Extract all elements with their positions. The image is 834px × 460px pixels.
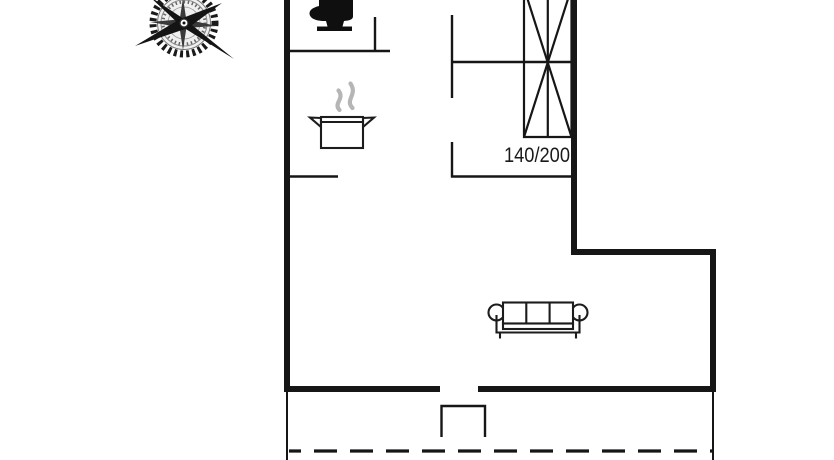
- floorplan-canvas: 140/200: [0, 0, 834, 460]
- floorplan-page: 140/200: [0, 0, 834, 460]
- exterior-wall-left-bottom: [287, 0, 440, 389]
- steam-wisp-left: [338, 91, 341, 111]
- exterior-walls: [287, 0, 713, 389]
- pot-handle-right: [363, 118, 374, 128]
- toilet-icon: [309, 0, 353, 31]
- terrace: [287, 392, 713, 460]
- pot-handle-left: [310, 118, 321, 128]
- toilet-silhouette: [309, 0, 353, 31]
- sofa-feet: [500, 333, 576, 339]
- bed-size-label: 140/200: [504, 144, 570, 167]
- compass-hub-dot: [183, 22, 186, 25]
- steam-wisp-right: [350, 84, 353, 109]
- sofa-seat-band: [503, 324, 573, 330]
- double-bed-crossed-icon: [524, 0, 572, 137]
- compass-rose-icon: [135, 0, 234, 59]
- entrance-step: [442, 406, 486, 437]
- sofa-back-cushions: [503, 303, 573, 324]
- three-seat-sofa-icon: [489, 303, 588, 339]
- steaming-pot-icon: [310, 84, 374, 149]
